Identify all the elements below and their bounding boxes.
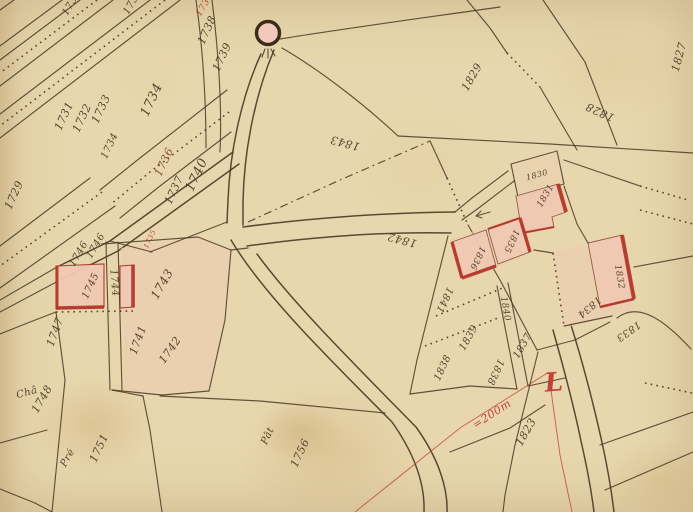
parcel-label: 1742 — [156, 334, 184, 366]
parcel-label: 1734 — [99, 131, 121, 161]
land-use-label: Pât — [259, 426, 276, 447]
red-letter-L: L — [543, 367, 564, 399]
land-use-label: Pré — [59, 447, 78, 469]
parcel-label: 1838 — [432, 353, 454, 383]
parcel-label: 1730 — [60, 0, 83, 18]
parcel-label: 1823 — [513, 416, 539, 448]
parcel-label: 1832 — [612, 264, 626, 290]
parcel-label: 1751 — [87, 432, 111, 465]
parcel-label: 1741 — [127, 324, 149, 357]
parcel-label: 1734 — [138, 81, 166, 119]
parcel-label: 1733 — [121, 0, 144, 17]
parcel-label: 1743 — [148, 266, 176, 301]
scale-note: =200m — [470, 397, 513, 431]
parcel-label: 1834 — [575, 294, 603, 320]
parcel-label: 1737 — [162, 174, 186, 207]
parcel-label: 1837 — [511, 331, 534, 360]
parcel-label: 1835 — [501, 228, 521, 255]
parcel-label: 1733 — [89, 93, 113, 126]
parcel-label: 1843 — [329, 133, 361, 153]
parcel-label: 1831 — [535, 183, 556, 210]
parcel-label: 1839 — [457, 323, 480, 352]
parcel-label: 1842 — [386, 230, 418, 250]
cadastral-map: 1730173317291731173217331734173417351736… — [0, 0, 693, 512]
parcel-label: 1744 — [107, 269, 120, 297]
parcel-label: 1729 — [2, 179, 26, 212]
parcel-label: 1840 — [498, 296, 512, 322]
parcel-label: 1828 — [584, 100, 617, 124]
parcel-label: 1829 — [459, 61, 485, 93]
parcel-label: 1735 — [142, 228, 158, 249]
parcel-label: 1830 — [525, 168, 549, 182]
parcel-label: 1747 — [44, 316, 66, 349]
parcel-label: 1738 — [195, 14, 219, 47]
parcel-label: 1841 — [433, 285, 455, 315]
parcel-label: 1836 — [467, 245, 487, 272]
parcel-label: 1827 — [669, 41, 689, 73]
parcel-label: 1838 — [484, 357, 506, 387]
parcel-labels-layer: 1730173317291731173217331734173417351736… — [0, 0, 693, 512]
parcel-label: 1756 — [288, 437, 312, 470]
parcel-label: 1739 — [210, 41, 234, 74]
parcel-label: 1745 — [80, 271, 102, 301]
parcel-label: 1736 — [152, 146, 176, 179]
parcel-label: 1740 — [183, 156, 211, 194]
parcel-label: 1833 — [614, 319, 643, 344]
